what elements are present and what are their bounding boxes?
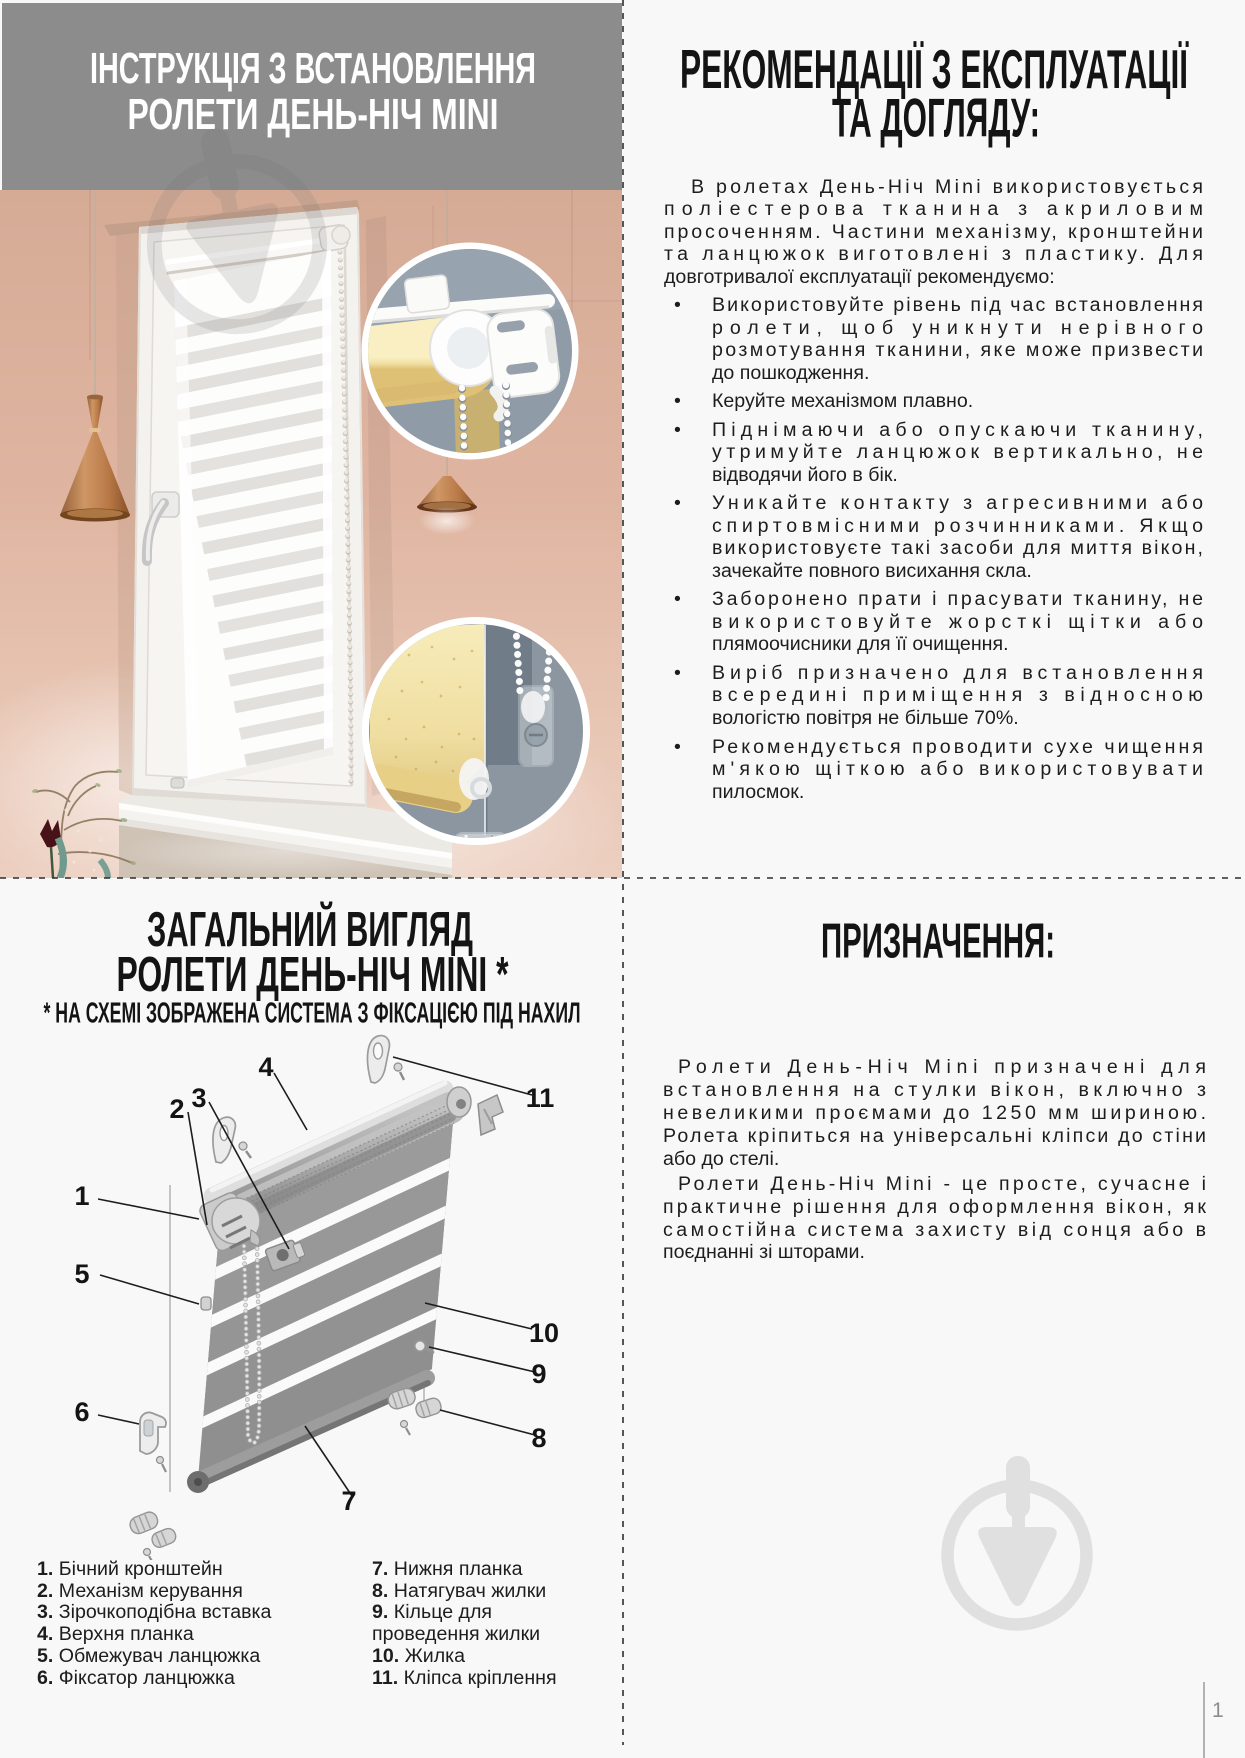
svg-text:10: 10 <box>529 1318 559 1348</box>
svg-text:* НА СХЕМІ ЗОБРАЖЕНА СИСТЕМА З: * НА СХЕМІ ЗОБРАЖЕНА СИСТЕМА З ФІКСАЦІЄЮ… <box>44 998 581 1030</box>
svg-text:ТА ДОГЛЯДУ:: ТА ДОГЛЯДУ: <box>832 87 1040 149</box>
svg-text:11: 11 <box>526 1083 555 1113</box>
svg-text:8: 8 <box>531 1423 546 1453</box>
svg-text:1: 1 <box>74 1181 89 1211</box>
svg-text:3: 3 <box>191 1083 206 1113</box>
svg-text:РОЛЕТИ ДЕНЬ-НІЧ MINI *: РОЛЕТИ ДЕНЬ-НІЧ MINI * <box>117 947 509 1002</box>
svg-text:4: 4 <box>258 1052 273 1082</box>
svg-text:2: 2 <box>169 1094 184 1124</box>
svg-text:7: 7 <box>341 1486 356 1516</box>
svg-text:5: 5 <box>74 1259 89 1289</box>
svg-text:9: 9 <box>531 1359 546 1389</box>
svg-text:ІНСТРУКЦІЯ З ВСТАНОВЛЕННЯ: ІНСТРУКЦІЯ З ВСТАНОВЛЕННЯ <box>90 44 536 93</box>
svg-text:ПРИЗНАЧЕННЯ:: ПРИЗНАЧЕННЯ: <box>821 914 1055 969</box>
svg-text:6: 6 <box>74 1397 89 1427</box>
